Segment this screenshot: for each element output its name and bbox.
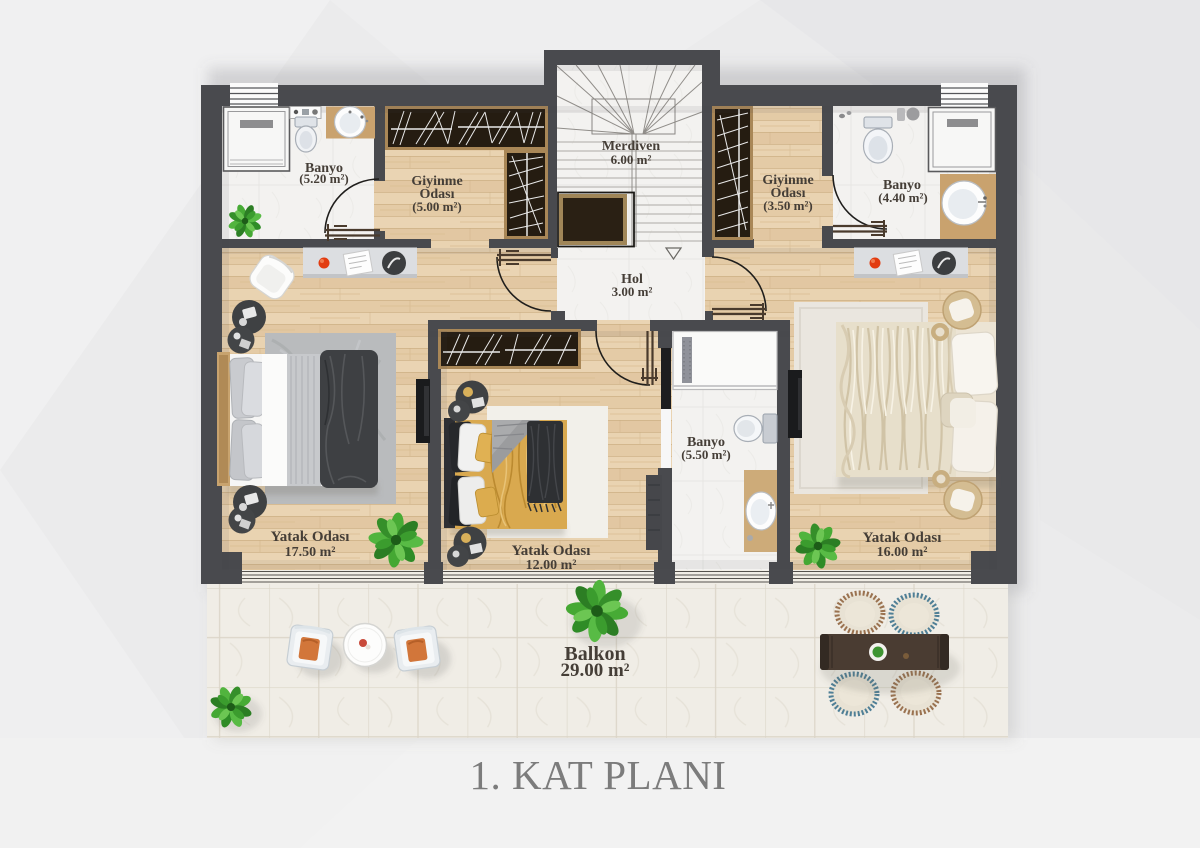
svg-text:Yatak Odası: Yatak Odası: [512, 543, 591, 559]
svg-text:(5.20 m²): (5.20 m²): [299, 171, 348, 186]
svg-text:Yatak Odası: Yatak Odası: [863, 530, 942, 546]
svg-text:6.00 m²: 6.00 m²: [611, 152, 652, 167]
svg-text:16.00 m²: 16.00 m²: [877, 545, 928, 560]
svg-text:(5.50 m²): (5.50 m²): [681, 447, 730, 462]
svg-text:(3.50 m²): (3.50 m²): [763, 198, 812, 213]
svg-text:(4.40 m²): (4.40 m²): [878, 190, 927, 205]
svg-text:17.50 m²: 17.50 m²: [285, 545, 336, 560]
svg-text:(5.00 m²): (5.00 m²): [412, 199, 461, 214]
svg-text:12.00 m²: 12.00 m²: [526, 558, 577, 573]
svg-text:Yatak Odası: Yatak Odası: [271, 529, 350, 545]
svg-text:29.00 m²: 29.00 m²: [560, 660, 629, 681]
svg-text:1. KAT PLANI: 1. KAT PLANI: [470, 752, 727, 798]
svg-text:3.00 m²: 3.00 m²: [612, 284, 653, 299]
